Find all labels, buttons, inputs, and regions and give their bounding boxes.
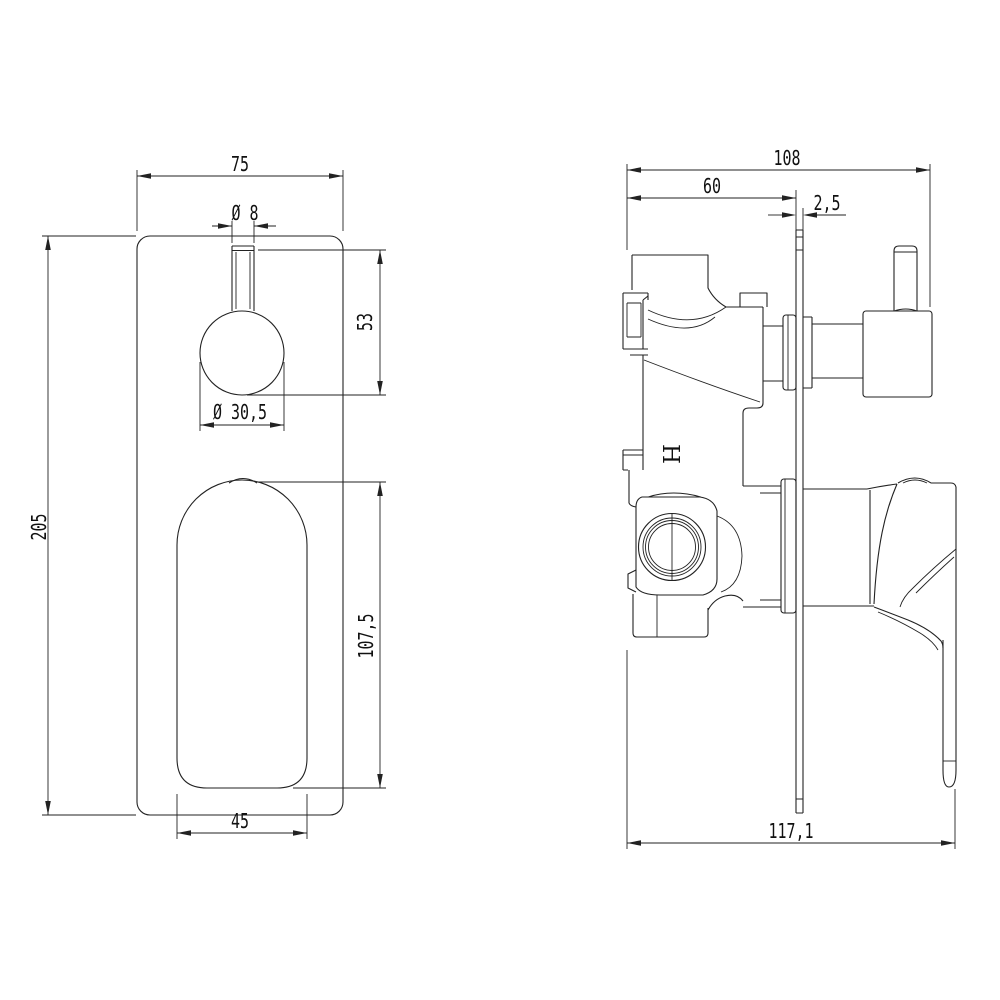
dim-label-plate-width: 75 <box>231 152 249 176</box>
body-fillets <box>644 307 760 402</box>
dim-label-paddle-width: 45 <box>231 809 249 833</box>
dim-plate-thickness: 2,5 <box>768 191 846 218</box>
valve-body <box>726 293 767 486</box>
upper-neck <box>763 315 796 390</box>
dim-label-paddle-height: 107,5 <box>354 614 378 659</box>
dim-knob-diameter: Ø 30,5 <box>200 362 284 431</box>
wall-plate-side <box>796 230 803 813</box>
knob-side <box>803 246 932 397</box>
lever-handle-side <box>803 478 956 787</box>
dim-depth-to-knob: 108 <box>627 146 930 307</box>
hot-water-marking: H <box>657 444 683 464</box>
dim-label-plate-height: 205 <box>27 514 51 541</box>
paddle-front <box>177 479 307 789</box>
dim-label-plate-thickness: 2,5 <box>814 191 841 215</box>
dim-label-knob-drop: 53 <box>353 313 377 331</box>
wall-plate-front <box>137 236 343 815</box>
dim-paddle-width: 45 <box>177 794 307 839</box>
front-view: 75 Ø 8 53 Ø 30,5 <box>27 152 386 839</box>
dim-label-depth-to-knob: 108 <box>774 146 801 170</box>
knob-stem-front <box>232 246 254 311</box>
technical-drawing-page: 75 Ø 8 53 Ø 30,5 <box>0 0 1000 1000</box>
lower-neck <box>743 479 796 613</box>
upper-mounting-ear <box>623 293 648 450</box>
bottom-block <box>633 594 743 637</box>
valve-top-port <box>632 255 726 307</box>
inlet-port <box>628 493 742 595</box>
dim-label-knob-diameter: Ø 30,5 <box>213 400 267 424</box>
dim-label-total-depth: 117,1 <box>769 819 814 843</box>
dim-paddle-height: 107,5 <box>258 482 386 788</box>
dim-total-depth: 117,1 <box>627 650 955 849</box>
mixer-valve-drawing: 75 Ø 8 53 Ø 30,5 <box>0 0 1000 1000</box>
dim-body-depth: 60 <box>627 174 803 230</box>
dim-knob-drop: 53 <box>247 250 386 395</box>
paddle-cap-bump <box>229 479 257 484</box>
dim-label-body-depth: 60 <box>703 174 721 198</box>
side-view: H 108 <box>623 146 956 849</box>
knob-circle <box>200 311 284 395</box>
dim-stem-diameter: Ø 8 <box>212 201 276 243</box>
dim-plate-height: 205 <box>27 236 136 815</box>
dim-label-stem-diameter: Ø 8 <box>232 201 259 225</box>
